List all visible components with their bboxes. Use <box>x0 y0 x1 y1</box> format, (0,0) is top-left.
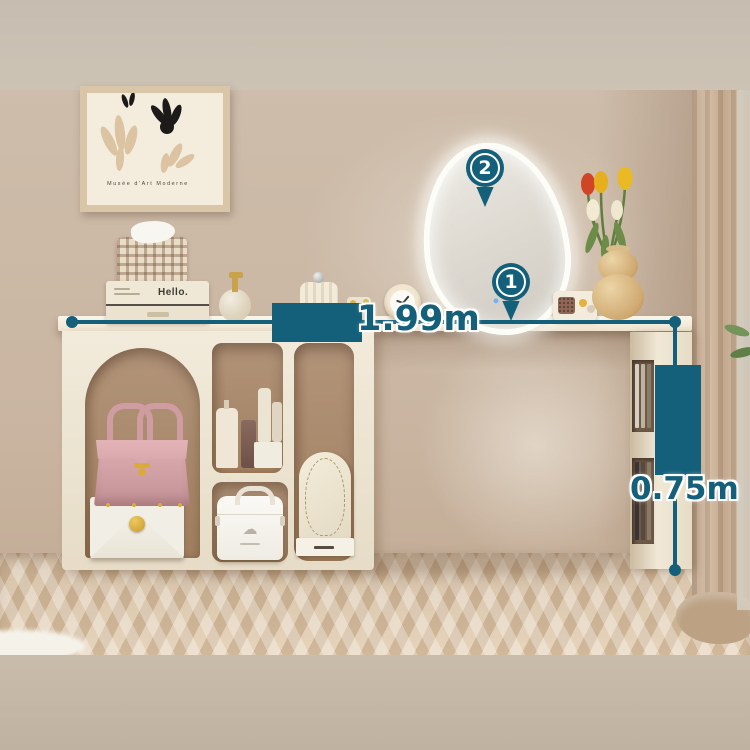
yellow-tulip <box>594 171 608 193</box>
glass-spray-bottle <box>219 272 251 322</box>
marker-1-number: 1 <box>496 267 526 297</box>
handbag-handle <box>137 403 183 445</box>
hello-box-print <box>114 288 130 290</box>
shelf-recess-upper <box>632 360 654 432</box>
handbag-foot <box>158 503 162 507</box>
blurred-top-band <box>0 0 750 90</box>
measure-endpoint-dot <box>669 564 681 576</box>
hotspot-marker-2[interactable]: 2 <box>465 153 505 207</box>
vase-lower-bulge <box>592 274 644 320</box>
spray-pump-head <box>229 272 243 278</box>
height-dimension-label: 0.75m <box>630 471 739 507</box>
wall-art-print: Musée d'Art Moderne <box>87 93 209 191</box>
canister-ball-knob <box>313 272 324 283</box>
product-photo: Musée d'Art Moderne <box>0 0 750 750</box>
hello-box-print <box>114 293 140 295</box>
hello-box-label: Hello. <box>158 287 188 298</box>
hotspot-marker-1[interactable]: 1 <box>491 267 531 321</box>
marker-1-pointer-icon <box>502 301 520 321</box>
speaker-grille <box>558 297 575 314</box>
redaction-rectangle-vertical <box>655 365 701 475</box>
woven-tissue-basket <box>117 237 187 284</box>
case-handle <box>235 486 275 505</box>
white-tulip <box>587 199 600 221</box>
arch-mirror-oval-trim <box>305 458 345 536</box>
arch-mirror-base-drawer <box>296 538 354 556</box>
red-tulip <box>581 173 595 195</box>
base-drawer-slot <box>314 546 334 549</box>
under-desk-light <box>420 330 650 560</box>
book-spine <box>641 364 645 428</box>
lotion-bottle <box>216 408 238 468</box>
cosmetic-case: ☁ <box>217 496 283 560</box>
measure-endpoint-dot <box>66 316 78 328</box>
spray-bulb <box>219 289 251 322</box>
redaction-rectangle-horizontal <box>272 303 362 342</box>
gold-knob <box>129 516 145 532</box>
cloud-logo-icon: ☁ <box>217 520 283 538</box>
yellow-tulip <box>618 168 633 190</box>
case-text-line <box>240 543 260 545</box>
art-caption: Musée d'Art Moderne <box>107 181 189 187</box>
amber-glass-vase <box>592 248 644 320</box>
handbag-turnlock <box>138 468 146 476</box>
hello-storage-box: Hello. <box>106 281 209 323</box>
spray-neck <box>232 276 238 292</box>
white-tulip <box>611 200 623 220</box>
wall-art-frame: Musée d'Art Moderne <box>80 86 230 212</box>
tabletop-arch-mirror <box>299 452 351 540</box>
shelf-riser-block <box>254 442 282 468</box>
case-lid-seam <box>217 514 283 515</box>
lotion-pump <box>224 400 229 409</box>
marker-2-pointer-icon <box>476 187 494 207</box>
cosmetic-bottle-small <box>272 402 282 442</box>
pink-handbag <box>94 396 190 508</box>
handbag-foot <box>178 503 182 507</box>
radio-knob <box>579 299 587 307</box>
spray-bottle-tall <box>258 388 271 442</box>
handbag-foot <box>106 503 110 507</box>
handbag-foot <box>132 503 136 507</box>
retro-radio-speaker <box>553 291 597 321</box>
marker-2-number: 2 <box>470 153 500 183</box>
measure-endpoint-dot <box>669 316 681 328</box>
hello-box-pull <box>147 312 169 317</box>
book-spine <box>647 364 651 428</box>
blurred-bottom-band <box>0 655 750 750</box>
width-dimension-label: 1.99m <box>357 299 480 339</box>
book-spine <box>635 364 639 428</box>
